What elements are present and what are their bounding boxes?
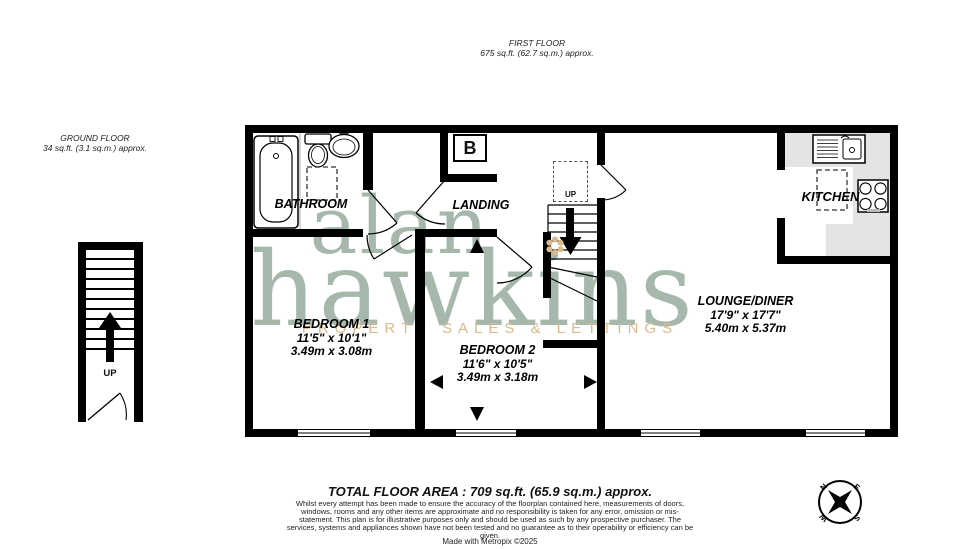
ground-floor-area: 34 sq.ft. (3.1 sq.m.) approx. xyxy=(20,143,170,153)
wall-bathroom-bottom xyxy=(245,229,363,237)
bedroom1-metric: 3.49m x 3.08m xyxy=(259,345,404,359)
lounge-label: LOUNGE/DINER 17'9" x 17'7" 5.40m x 5.37m xyxy=(673,295,818,336)
wall-bedroom2-top xyxy=(425,229,497,237)
window-bedroom1 xyxy=(298,429,370,437)
stair-tread xyxy=(86,298,134,300)
wall-bathroom-right xyxy=(363,125,373,190)
bedroom1-label: BEDROOM 1 11'5" x 10'1" 3.49m x 3.08m xyxy=(259,318,404,359)
compass-icon: N E S W xyxy=(812,474,868,530)
compass-n: N xyxy=(819,482,830,493)
entrance-door-swing xyxy=(86,378,134,422)
bedroom2-door xyxy=(497,237,532,283)
watermark-flower-icon xyxy=(545,236,565,256)
kitchen-sink-icon xyxy=(813,135,865,163)
disclaimer-text: Whilst every attempt has been made to en… xyxy=(285,500,695,540)
stair-tread xyxy=(86,288,134,290)
bedroom2-name: BEDROOM 2 xyxy=(425,344,570,358)
dim-arrow-up-icon xyxy=(470,239,484,253)
ground-floor-staircase: UP xyxy=(78,242,143,422)
stair-tread xyxy=(86,308,134,310)
first-floor-title: FIRST FLOOR xyxy=(437,38,637,48)
bathroom-dashed-unit xyxy=(307,167,337,200)
first-floor-header: FIRST FLOOR 675 sq.ft. (62.7 sq.m.) appr… xyxy=(437,38,637,58)
bedroom2-metric: 3.49m x 3.18m xyxy=(425,371,570,385)
stair-tread xyxy=(86,278,134,280)
window-lounge-right xyxy=(806,429,865,437)
bathtub-icon xyxy=(254,136,298,228)
wall-kitchen-left-upper xyxy=(777,133,785,170)
loft-hatch-label: UP xyxy=(554,190,587,199)
first-floor-plan: B UP BATHROOM LANDING KITCHEN BEDROOM 1 … xyxy=(245,125,898,437)
bathroom-door xyxy=(368,190,397,234)
wall-outer-left xyxy=(245,125,253,437)
lounge-door xyxy=(601,165,626,200)
bathroom-label: BATHROOM xyxy=(255,198,367,212)
stair-tread xyxy=(86,268,134,270)
wall-lounge-left xyxy=(597,198,605,429)
kitchen-label: KITCHEN xyxy=(778,190,883,204)
boiler-box: B xyxy=(453,134,487,162)
toilet-icon xyxy=(305,134,331,167)
wall-bedroom-divider xyxy=(415,229,425,429)
wall-outer-right xyxy=(890,125,898,437)
compass-w: W xyxy=(818,512,830,524)
bedroom1-imperial: 11'5" x 10'1" xyxy=(259,332,404,346)
lounge-name: LOUNGE/DINER xyxy=(673,295,818,309)
sink-icon xyxy=(329,134,359,158)
up-arrow-icon xyxy=(99,312,121,328)
credit-line: Made with Metropix ©2025 xyxy=(0,537,980,546)
first-floor-area: 675 sq.ft. (62.7 sq.m.) approx. xyxy=(437,48,637,58)
ground-floor-header: GROUND FLOOR 34 sq.ft. (3.1 sq.m.) appro… xyxy=(20,133,170,153)
bedroom1-door xyxy=(367,235,412,259)
up-arrow-stem xyxy=(106,326,114,362)
stair-tread xyxy=(86,258,134,260)
lounge-metric: 5.40m x 5.37m xyxy=(673,322,818,336)
wall-outer-top xyxy=(245,125,898,133)
ground-floor-title: GROUND FLOOR xyxy=(20,133,170,143)
bedroom2-imperial: 11'6" x 10'5" xyxy=(425,358,570,372)
window-bedroom2 xyxy=(456,429,516,437)
loft-hatch-box: UP xyxy=(553,161,588,202)
wall-cupboard-bottom xyxy=(440,174,497,182)
wall-kitchen-bottom xyxy=(777,256,898,264)
lounge-imperial: 17'9" x 17'7" xyxy=(673,309,818,323)
dim-arrow-right-icon xyxy=(584,375,597,389)
wall-lounge-top-segment xyxy=(597,133,605,165)
dim-arrow-down-icon xyxy=(470,407,484,421)
bedroom1-name: BEDROOM 1 xyxy=(259,318,404,332)
landing-label: LANDING xyxy=(421,199,541,213)
bedroom2-label: BEDROOM 2 11'6" x 10'5" 3.49m x 3.18m xyxy=(425,344,570,385)
floorplan-page: FIRST FLOOR 675 sq.ft. (62.7 sq.m.) appr… xyxy=(0,0,980,549)
window-lounge-left xyxy=(641,429,700,437)
